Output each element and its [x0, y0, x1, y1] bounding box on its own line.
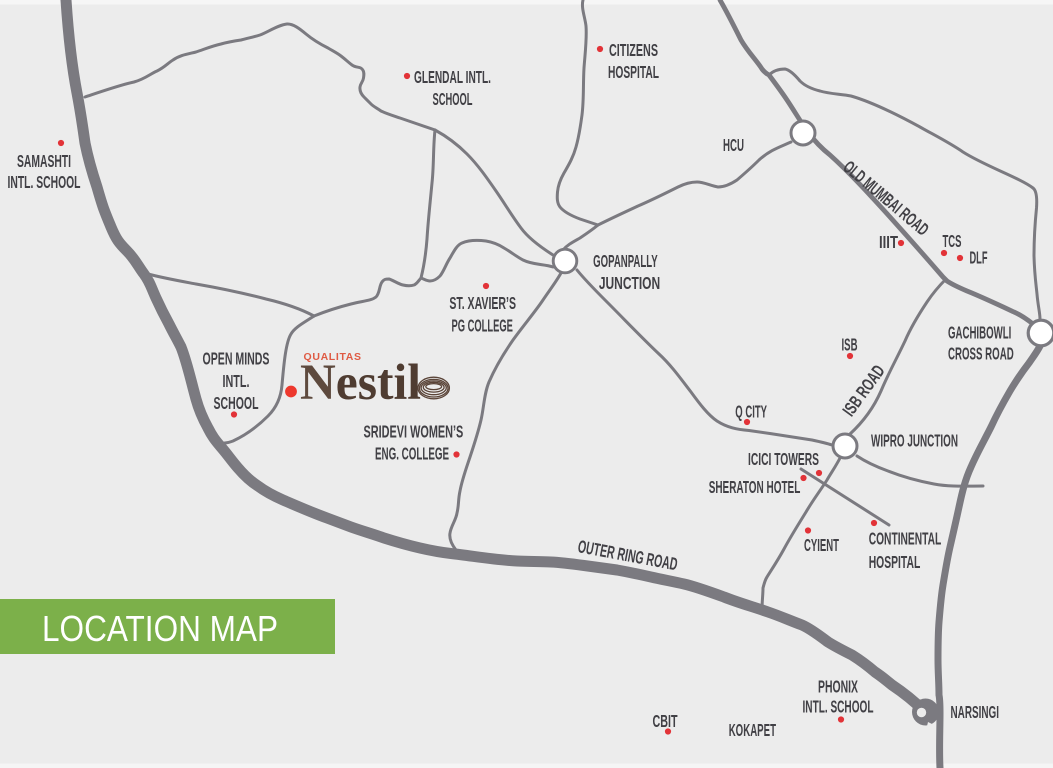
svg-text:CONTINENTAL: CONTINENTAL	[869, 529, 942, 549]
svg-text:LOCATION MAP: LOCATION MAP	[42, 608, 278, 649]
svg-text:INTL. SCHOOL: INTL. SCHOOL	[803, 697, 874, 717]
svg-text:JUNCTION: JUNCTION	[599, 273, 660, 293]
svg-text:SRIDEVI WOMEN’S: SRIDEVI WOMEN’S	[364, 422, 464, 442]
svg-text:ICICI TOWERS: ICICI TOWERS	[748, 449, 819, 469]
svg-text:ENG. COLLEGE: ENG. COLLEGE	[375, 444, 449, 464]
svg-text:CYIENT: CYIENT	[804, 535, 839, 555]
svg-text:INTL.: INTL.	[223, 371, 250, 391]
svg-text:HCU: HCU	[723, 135, 744, 155]
svg-text:HOSPITAL: HOSPITAL	[869, 552, 921, 572]
svg-text:CBIT: CBIT	[653, 711, 678, 731]
svg-text:NARSINGI: NARSINGI	[951, 702, 1000, 722]
svg-text:ST. XAVIER’S: ST. XAVIER’S	[449, 293, 516, 313]
svg-text:ISB: ISB	[842, 335, 858, 355]
svg-text:Nestil: Nestil	[300, 355, 421, 411]
svg-text:OPEN MINDS: OPEN MINDS	[203, 349, 270, 369]
svg-text:SCHOOL: SCHOOL	[433, 89, 473, 109]
svg-text:GLENDAL INTL.: GLENDAL INTL.	[414, 67, 491, 87]
svg-text:WIPRO JUNCTION: WIPRO JUNCTION	[871, 431, 958, 451]
svg-text:KOKAPET: KOKAPET	[729, 720, 776, 740]
svg-text:IIIT: IIIT	[879, 232, 898, 252]
svg-text:CROSS ROAD: CROSS ROAD	[948, 344, 1014, 364]
svg-text:CITIZENS: CITIZENS	[609, 40, 658, 60]
svg-text:GACHIBOWLI: GACHIBOWLI	[948, 323, 1011, 343]
svg-text:DLF: DLF	[970, 248, 988, 268]
svg-text:SCHOOL: SCHOOL	[214, 393, 259, 413]
svg-text:PG COLLEGE: PG COLLEGE	[452, 316, 513, 336]
svg-text:SHERATON HOTEL: SHERATON HOTEL	[709, 477, 801, 497]
svg-text:HOSPITAL: HOSPITAL	[608, 62, 659, 82]
svg-text:GOPANPALLY: GOPANPALLY	[593, 251, 658, 271]
svg-text:TCS: TCS	[943, 231, 962, 251]
svg-text:SAMASHTI: SAMASHTI	[17, 151, 71, 171]
svg-text:PHONIX: PHONIX	[818, 677, 858, 697]
svg-text:INTL. SCHOOL: INTL. SCHOOL	[8, 172, 81, 192]
svg-text:Q CITY: Q CITY	[735, 402, 767, 422]
